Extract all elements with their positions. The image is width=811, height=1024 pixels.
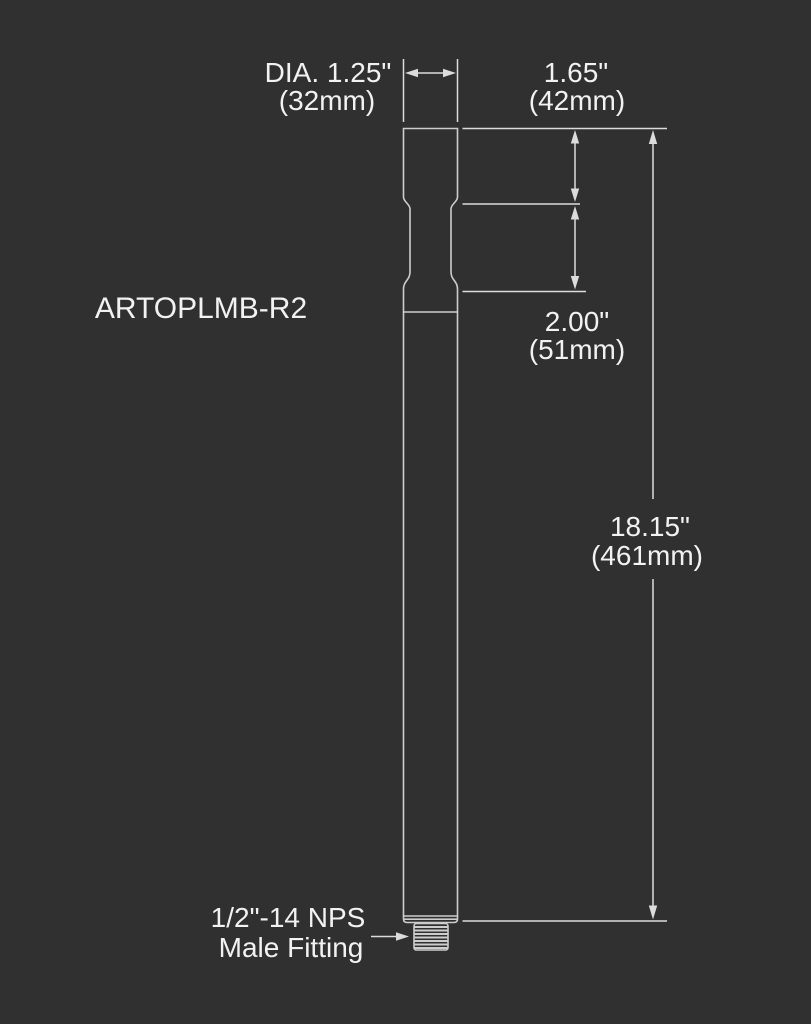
diameter-dimension: DIA. 1.25" (32mm): [265, 57, 458, 122]
top-section-dimension: 1.65" (42mm): [463, 57, 668, 204]
groove-section-dimension: 2.00" (51mm): [463, 206, 626, 365]
top-section-arrowhead-down: [571, 189, 579, 203]
diameter-arrowhead-right: [443, 69, 456, 77]
thread-fitting: [414, 924, 448, 951]
fitting-callout: 1/2"-14 NPS Male Fitting: [211, 902, 409, 963]
top-section-label-inches: 1.65": [544, 57, 608, 88]
overall-length-label-mm: (461mm): [591, 540, 703, 571]
part-outline: [404, 129, 458, 951]
overall-length-arrowhead-up: [649, 130, 657, 144]
fitting-label-size: 1/2"-14 NPS: [211, 902, 366, 933]
fitting-arrowhead-right: [396, 932, 409, 940]
overall-length-dimension: 18.15" (461mm): [463, 130, 704, 921]
overall-length-label-inches: 18.15": [610, 511, 690, 542]
diameter-label-inches: DIA. 1.25": [265, 57, 392, 88]
model-number: ARTOPLMB-R2: [95, 292, 307, 325]
overall-length-arrowhead-down: [649, 906, 657, 920]
top-section-label-mm: (42mm): [529, 85, 625, 116]
diameter-arrowhead-left: [405, 69, 418, 77]
technical-diagram: DIA. 1.25" (32mm) 1.65" (42mm) 2.00" (51…: [0, 0, 811, 1024]
part-body-outline: [404, 129, 458, 917]
diagram-page: DIA. 1.25" (32mm) 1.65" (42mm) 2.00" (51…: [0, 0, 811, 1024]
groove-section-label-mm: (51mm): [529, 334, 625, 365]
fitting-label-type: Male Fitting: [219, 932, 364, 963]
groove-section-arrowhead-down: [571, 276, 579, 290]
groove-section-label-inches: 2.00": [545, 306, 609, 337]
part-bottom-rim: [404, 916, 458, 923]
groove-section-arrowhead-up: [571, 206, 579, 220]
top-section-arrowhead-up: [571, 130, 579, 144]
diameter-label-mm: (32mm): [279, 85, 375, 116]
